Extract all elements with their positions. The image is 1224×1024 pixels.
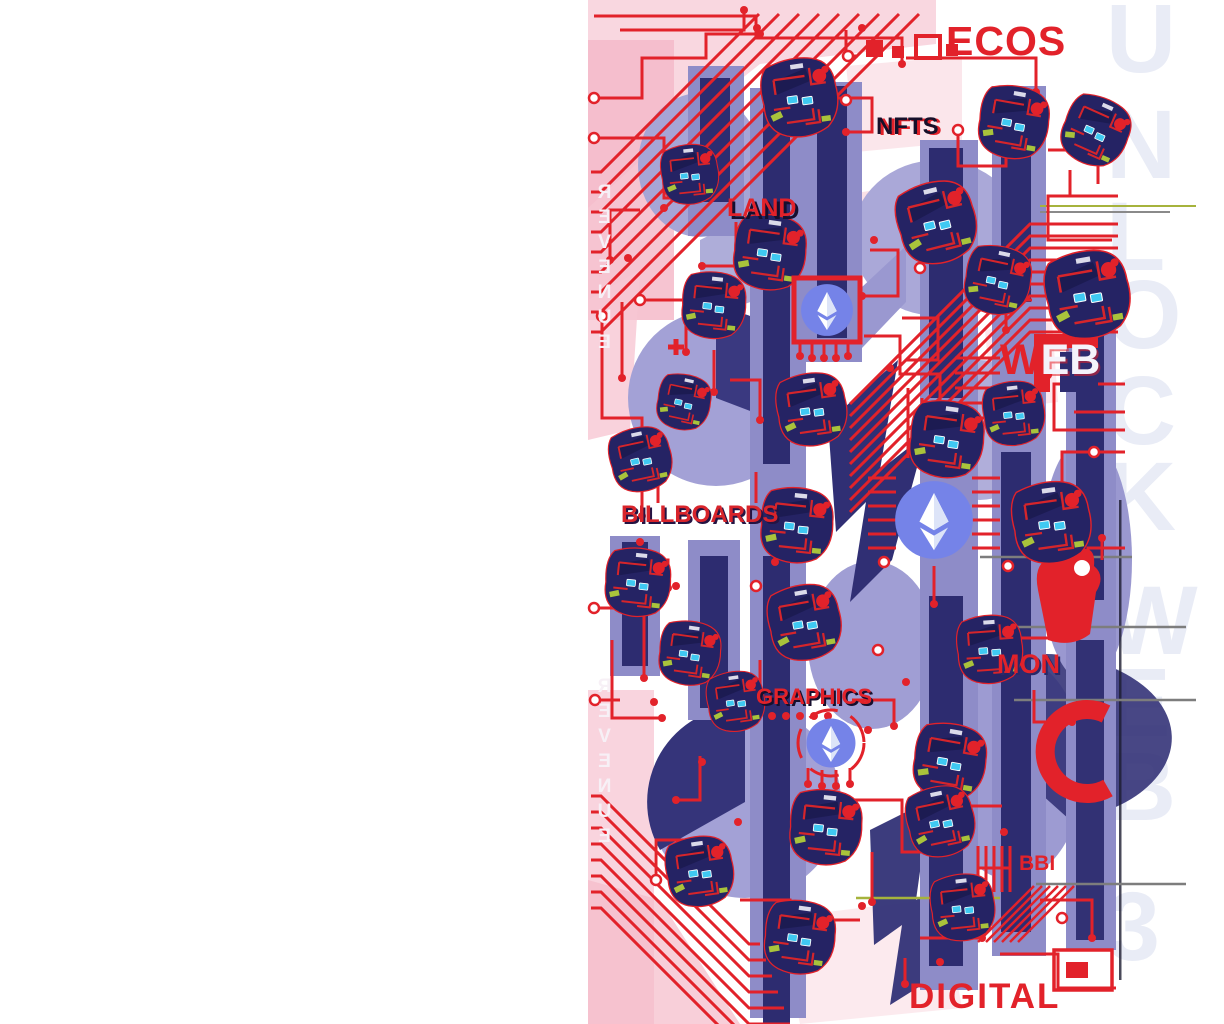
land-label: LAND <box>727 194 796 223</box>
trace-node <box>890 722 898 730</box>
trace-node <box>873 645 883 655</box>
trace-node <box>672 582 680 590</box>
trace-node <box>1000 828 1008 836</box>
revenue-label-bottom: REVENUE <box>594 676 630 808</box>
trace-node <box>953 125 963 135</box>
trace-node <box>879 557 889 567</box>
chip-bot-icon <box>1052 87 1140 176</box>
trace-node <box>753 24 761 32</box>
bbi-fragment-label: BBI <box>1019 852 1055 876</box>
trace-node <box>842 128 850 136</box>
trace-node <box>843 51 853 61</box>
ethereum-icon <box>801 284 853 336</box>
trace-node <box>651 875 661 885</box>
graphics-label: GRAPHICS <box>756 684 872 710</box>
trace-node <box>640 674 648 682</box>
trace-node <box>796 712 804 720</box>
trace-node <box>1003 561 1013 571</box>
digital-label: DIGITAL <box>909 977 1060 1017</box>
trace-node <box>618 374 626 382</box>
trace-node <box>846 780 854 788</box>
trace-node <box>589 603 599 613</box>
trace-node <box>804 780 812 788</box>
trace-node <box>734 818 742 826</box>
monetize-fragment-label: MON <box>997 649 1060 680</box>
billboards-label: BILLBOARDS <box>621 501 778 529</box>
web3-ecosystem-artwork: UNLOCKWEB3 <box>0 0 1224 1024</box>
trace-node <box>868 898 876 906</box>
ecosystem-label: ECOS <box>946 18 1066 65</box>
trace-node <box>858 902 866 910</box>
trace-node <box>751 581 761 591</box>
chip-bot-icon <box>786 786 865 868</box>
web-label-eb: EB <box>1041 336 1101 384</box>
trace-node <box>864 726 872 734</box>
trace-node <box>870 236 878 244</box>
trace-node <box>1088 934 1096 942</box>
web-label: WEB <box>1000 336 1100 385</box>
trace-node <box>915 263 925 273</box>
chip-bot-icon <box>602 545 674 620</box>
trace-node <box>698 758 706 766</box>
trace-node <box>858 24 866 32</box>
trace-node <box>768 712 776 720</box>
trace-node <box>1057 913 1067 923</box>
trace-node <box>756 416 764 424</box>
trace-node <box>818 782 826 790</box>
trace-node <box>936 958 944 966</box>
trace-node <box>886 364 894 372</box>
trace-node <box>844 352 852 360</box>
trace-node <box>832 782 840 790</box>
trace-node <box>740 6 748 14</box>
trace-node <box>650 698 658 706</box>
trace-node <box>1089 447 1099 457</box>
trace-node <box>660 204 668 212</box>
trace-node <box>930 600 938 608</box>
trace-node <box>832 354 840 362</box>
ethereum-icon <box>807 719 856 768</box>
trace-node <box>698 262 706 270</box>
revenue-label-top: REVENUE <box>594 182 630 310</box>
trace-node <box>820 354 828 362</box>
trace-node <box>1002 326 1010 334</box>
trace-node <box>841 95 851 105</box>
web-label-w: W <box>1000 336 1041 384</box>
trace-node <box>902 678 910 686</box>
trace-node <box>635 295 645 305</box>
trace-node <box>636 538 644 546</box>
trace-node <box>808 354 816 362</box>
trace-node <box>782 712 790 720</box>
trace-node <box>589 93 599 103</box>
trace-node <box>796 352 804 360</box>
trace-node <box>658 714 666 722</box>
trace-node <box>901 980 909 988</box>
nfts-label: NFTS <box>876 113 939 141</box>
trace-node <box>1098 534 1106 542</box>
trace-node <box>672 796 680 804</box>
ethereum-icon <box>895 481 973 559</box>
trace-node <box>589 133 599 143</box>
circuit-trace <box>1048 196 1118 240</box>
trace-node <box>898 60 906 68</box>
